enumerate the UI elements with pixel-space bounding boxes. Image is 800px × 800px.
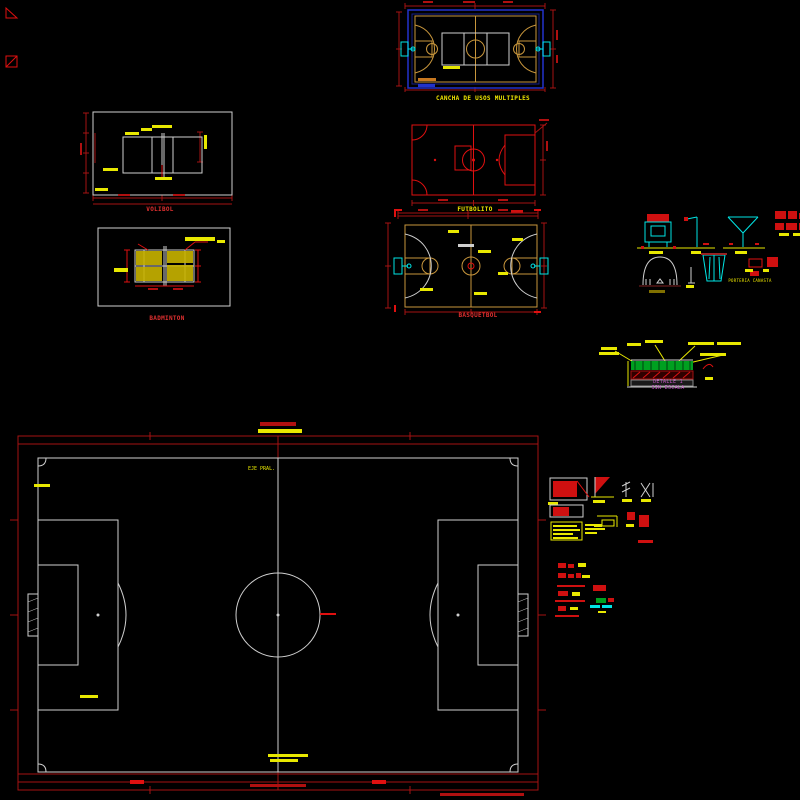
pitch-spots <box>97 614 460 617</box>
basket-post-detail <box>683 217 715 254</box>
field-axis-label: EJE PRAL. <box>248 466 275 472</box>
misc-details-drawing <box>546 466 666 621</box>
corner-symbols <box>2 4 22 74</box>
net-panel-detail-1 <box>548 478 589 505</box>
volleyball-caption: VOLIBOL <box>100 206 220 213</box>
section-detail-scale: SIN ESCALA <box>628 385 708 391</box>
stake-glyph-1 <box>622 482 632 502</box>
field-micro-labels-yellow <box>34 429 308 762</box>
stake-glyph-2 <box>641 483 653 502</box>
field-micro-labels-red <box>250 422 524 796</box>
soccer-field-drawing: EJE PRAL. <box>10 420 550 800</box>
backboard-front-detail <box>637 214 683 254</box>
layer-sample-cluster <box>590 585 614 613</box>
north-mark-icon <box>6 8 17 18</box>
multi-court-hoop-right <box>536 42 550 56</box>
section-mark-icon <box>6 56 17 67</box>
section-detail-caption: DETALLE 1 SIN ESCALA <box>628 379 708 391</box>
basketball-drawing <box>378 208 558 323</box>
equipment-caption: PORTERIA CANASTA <box>700 278 800 283</box>
field-center-red-tick <box>320 613 336 615</box>
badminton-drawing <box>88 220 238 330</box>
cad-canvas: CANCHA DE USOS MULTIPLES <box>0 0 800 800</box>
goal-right <box>518 594 528 636</box>
post-side-glyph <box>686 267 695 288</box>
multi-court-drawing <box>393 0 568 92</box>
corner-flag-detail <box>591 477 614 503</box>
basketball-dimension-lines <box>385 210 547 315</box>
basketball-court-lines <box>405 225 537 307</box>
volleyball-micro-labels <box>95 125 207 191</box>
basket-net-detail <box>701 254 727 281</box>
multi-court-caption: CANCHA DE USOS MULTIPLES <box>423 95 543 102</box>
goal-frame-detail <box>723 217 765 254</box>
goal-left <box>28 594 38 636</box>
futbolito-spots <box>434 159 498 162</box>
multi-court-basketball-lines <box>415 16 536 82</box>
hoop-arch-detail <box>639 257 681 293</box>
equipment-details-drawing <box>633 203 800 298</box>
volleyball-drawing <box>78 103 238 215</box>
futbolito-drawing <box>393 113 555 221</box>
anchor-details <box>775 211 800 236</box>
badminton-caption: BADMINTON <box>107 315 227 322</box>
net-panel-detail-2 <box>550 505 583 517</box>
basketball-hoop-left <box>394 258 411 274</box>
basketball-caption: BASQUETBOL <box>418 312 538 319</box>
bracket-details <box>745 257 778 276</box>
micro-symbol-rows <box>555 563 590 617</box>
section-side-glyph <box>703 364 713 380</box>
red-fitting-details <box>626 512 649 527</box>
multi-court-hoop-left <box>401 42 415 56</box>
